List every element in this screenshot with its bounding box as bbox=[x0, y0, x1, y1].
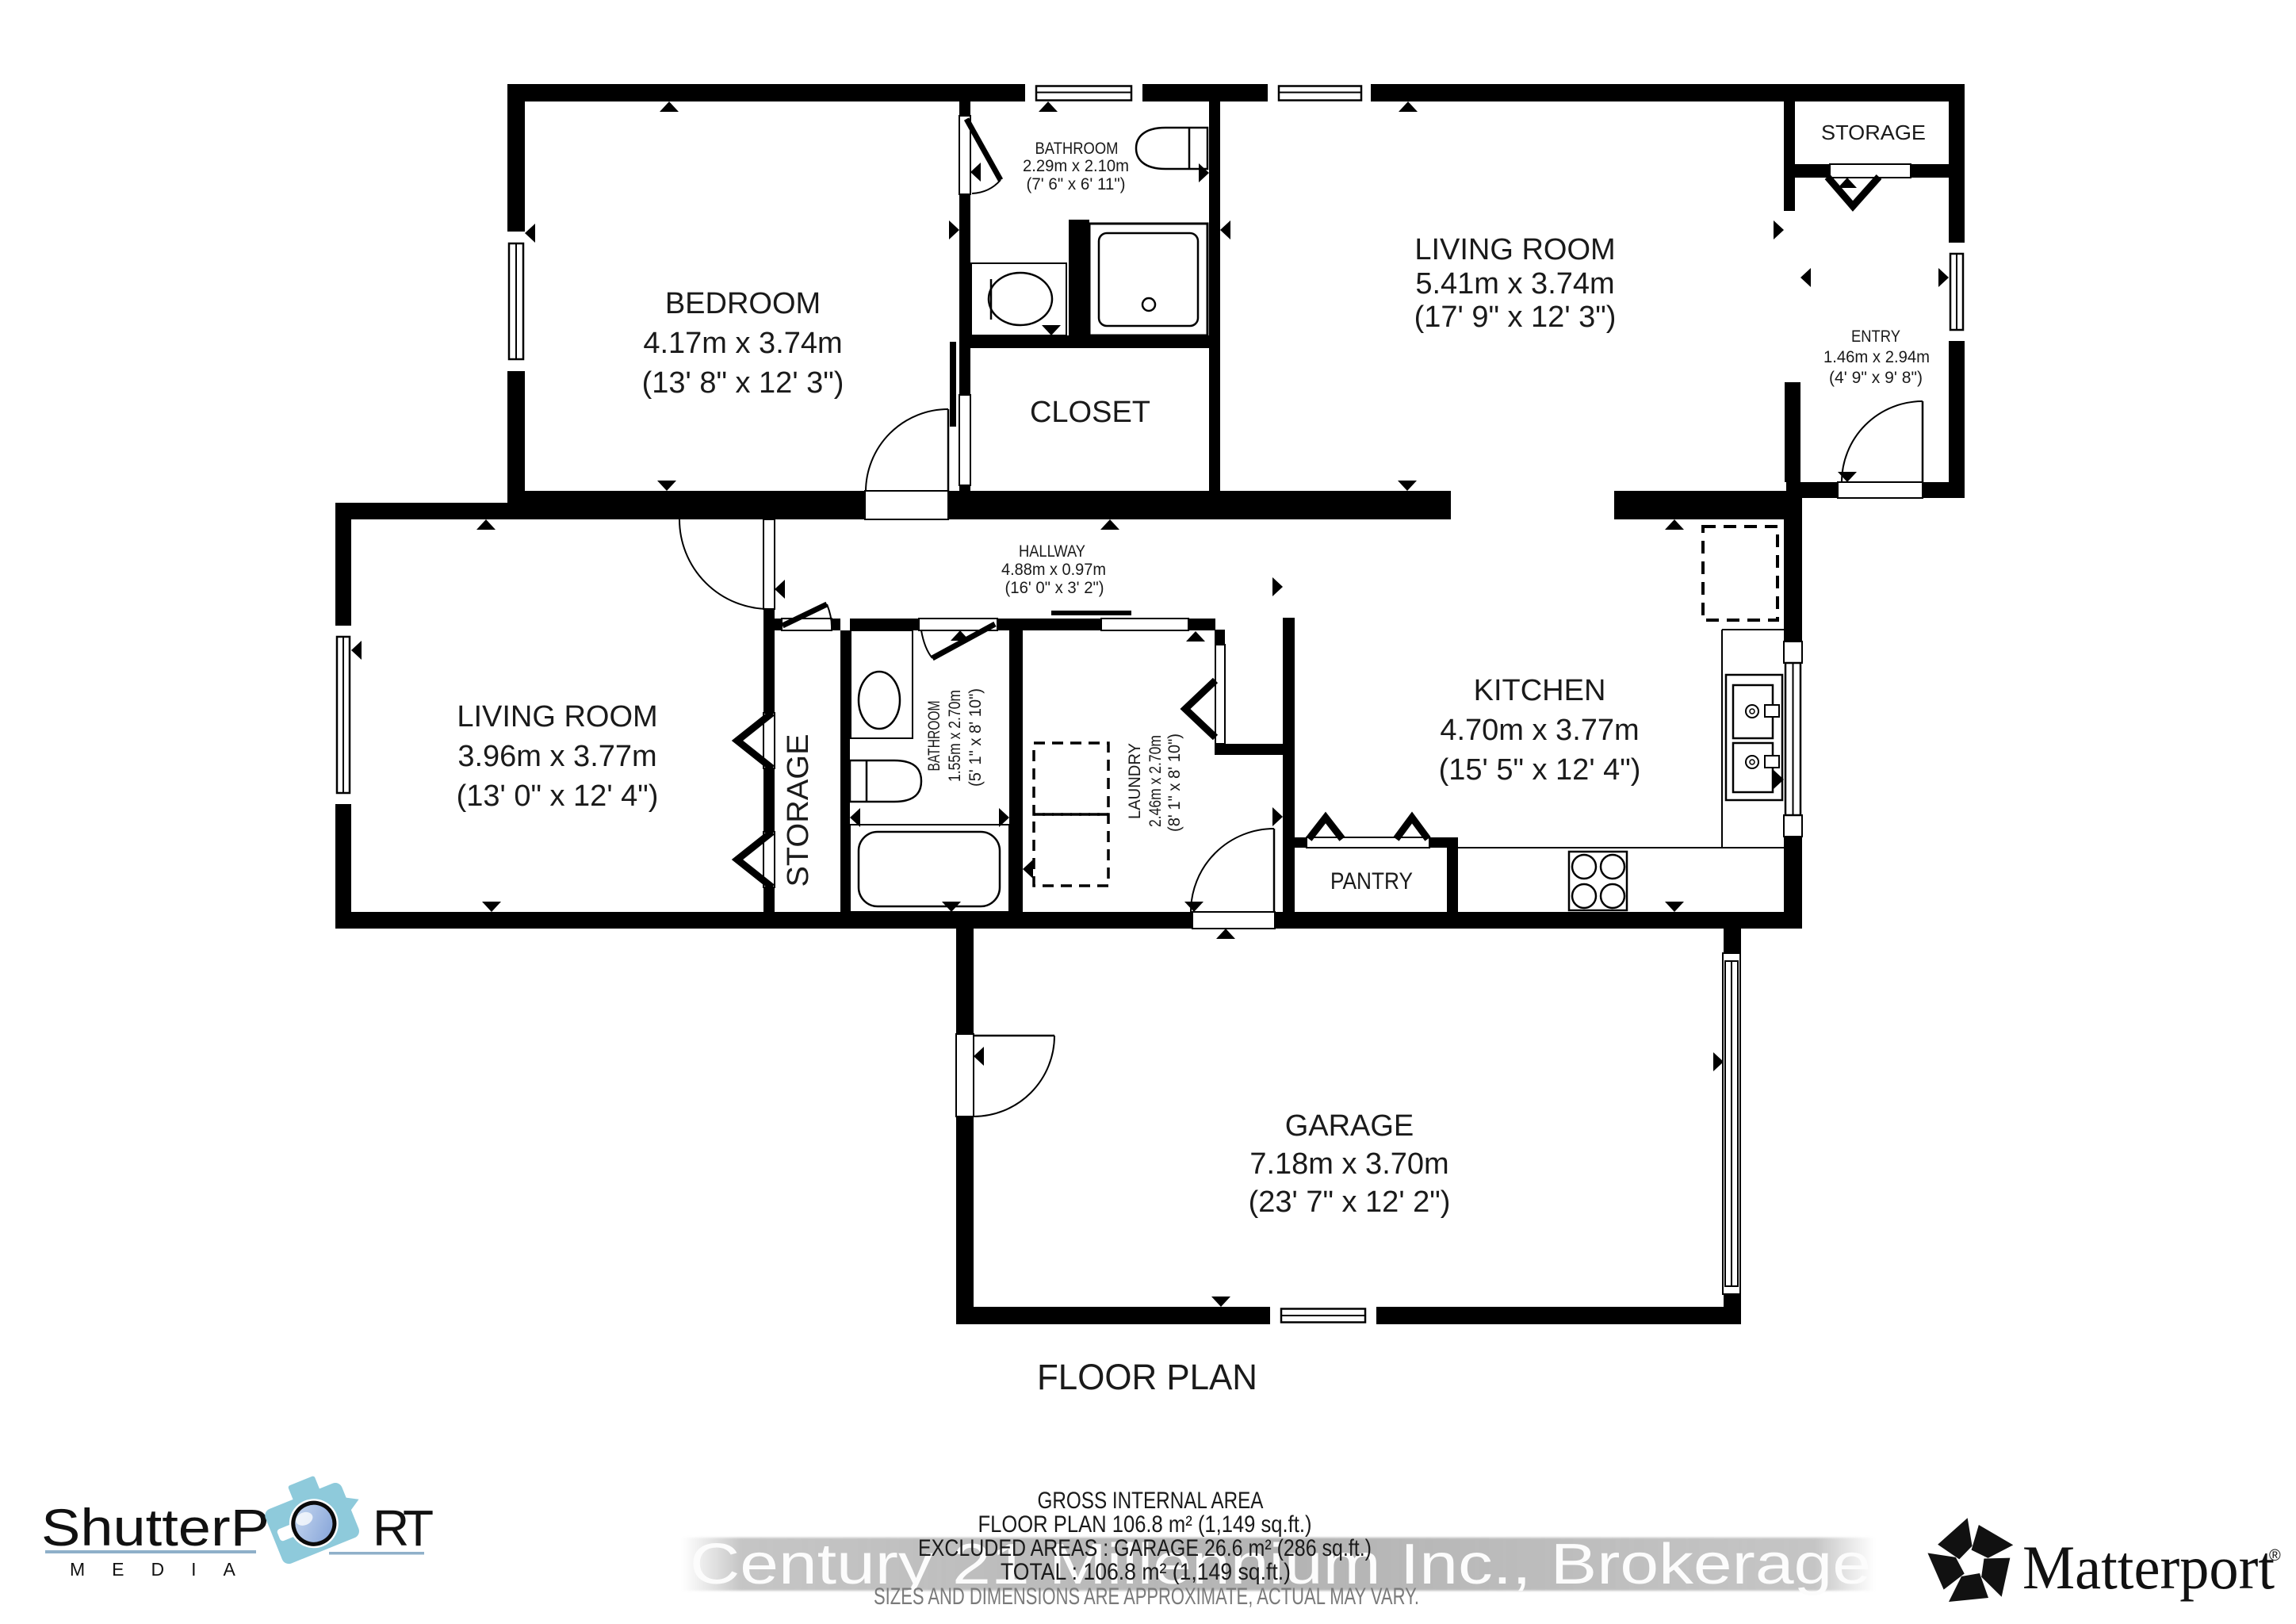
svg-text:2.46m x 2.70m: 2.46m x 2.70m bbox=[1146, 735, 1165, 827]
svg-text:(16' 0" x 3' 2"): (16' 0" x 3' 2") bbox=[1005, 579, 1104, 597]
svg-text:BATHROOM: BATHROOM bbox=[1035, 140, 1119, 158]
svg-text:ENTRY: ENTRY bbox=[1851, 327, 1900, 346]
svg-text:PANTRY: PANTRY bbox=[1330, 868, 1413, 894]
svg-text:KITCHEN: KITCHEN bbox=[1474, 674, 1606, 707]
svg-text:4.88m x 0.97m: 4.88m x 0.97m bbox=[1001, 561, 1106, 579]
svg-text:2.29m x 2.10m: 2.29m x 2.10m bbox=[1023, 157, 1129, 175]
svg-text:1.55m x 2.70m: 1.55m x 2.70m bbox=[946, 690, 964, 782]
svg-text:5.41m x 3.74m: 5.41m x 3.74m bbox=[1415, 267, 1614, 301]
svg-text:STORAGE: STORAGE bbox=[1821, 121, 1926, 144]
svg-text:(13' 8" x 12' 3"): (13' 8" x 12' 3") bbox=[642, 366, 844, 400]
svg-text:EXCLUDED AREAS : GARAGE 26.6: EXCLUDED AREAS : GARAGE 26.6 m² (286 sq.… bbox=[918, 1535, 1372, 1561]
svg-text:LIVING ROOM: LIVING ROOM bbox=[457, 700, 657, 733]
svg-text:(13' 0" x 12' 4"): (13' 0" x 12' 4") bbox=[457, 779, 659, 813]
svg-text:MEDIA: MEDIA bbox=[70, 1559, 262, 1580]
svg-text:BATHROOM: BATHROOM bbox=[925, 701, 943, 772]
svg-text:HALLWAY: HALLWAY bbox=[1019, 542, 1085, 561]
svg-text:LIVING ROOM: LIVING ROOM bbox=[1414, 233, 1615, 266]
svg-text:(5' 1" x 8' 10"): (5' 1" x 8' 10") bbox=[966, 688, 985, 787]
svg-text:4.17m x 3.74m: 4.17m x 3.74m bbox=[643, 327, 842, 360]
svg-text:SIZES AND DIMENSIONS ARE APPRO: SIZES AND DIMENSIONS ARE APPROXIMATE, AC… bbox=[874, 1584, 1419, 1610]
svg-text:TOTAL : 106.8 m² (1,149 sq.ft: TOTAL : 106.8 m² (1,149 sq.ft.) bbox=[1001, 1559, 1291, 1585]
svg-text:(7' 6" x 6' 11"): (7' 6" x 6' 11") bbox=[1027, 175, 1126, 193]
svg-text:1.46m x 2.94m: 1.46m x 2.94m bbox=[1823, 348, 1930, 366]
svg-text:Matterport: Matterport bbox=[2022, 1533, 2275, 1602]
svg-text:®: ® bbox=[2269, 1547, 2281, 1565]
svg-text:(17' 9" x 12' 3"): (17' 9" x 12' 3") bbox=[1414, 301, 1617, 334]
svg-text:3.96m x 3.77m: 3.96m x 3.77m bbox=[457, 740, 656, 773]
svg-text:FLOOR PLAN: FLOOR PLAN bbox=[1037, 1357, 1257, 1397]
svg-text:ShutterP: ShutterP bbox=[41, 1498, 270, 1557]
svg-text:T: T bbox=[403, 1500, 434, 1557]
svg-text:LAUNDRY: LAUNDRY bbox=[1126, 743, 1144, 819]
svg-text:GARAGE: GARAGE bbox=[1285, 1109, 1414, 1143]
svg-text:(23' 7" x 12' 2"): (23' 7" x 12' 2") bbox=[1249, 1185, 1451, 1219]
svg-text:(4' 9" x 9' 8"): (4' 9" x 9' 8") bbox=[1829, 369, 1923, 387]
svg-text:GROSS INTERNAL AREA: GROSS INTERNAL AREA bbox=[1038, 1488, 1264, 1514]
svg-text:(8' 1" x 8' 10"): (8' 1" x 8' 10") bbox=[1165, 733, 1184, 832]
svg-text:BEDROOM: BEDROOM bbox=[665, 287, 821, 320]
svg-text:(15' 5" x 12' 4"): (15' 5" x 12' 4") bbox=[1439, 753, 1641, 787]
svg-text:4.70m x 3.77m: 4.70m x 3.77m bbox=[1440, 714, 1639, 747]
svg-text:CLOSET: CLOSET bbox=[1030, 396, 1150, 429]
svg-text:STORAGE: STORAGE bbox=[782, 734, 815, 887]
svg-text:FLOOR PLAN 106.8 m² (1,149 sq.: FLOOR PLAN 106.8 m² (1,149 sq.ft.) bbox=[978, 1511, 1312, 1538]
svg-text:7.18m x 3.70m: 7.18m x 3.70m bbox=[1249, 1147, 1448, 1181]
